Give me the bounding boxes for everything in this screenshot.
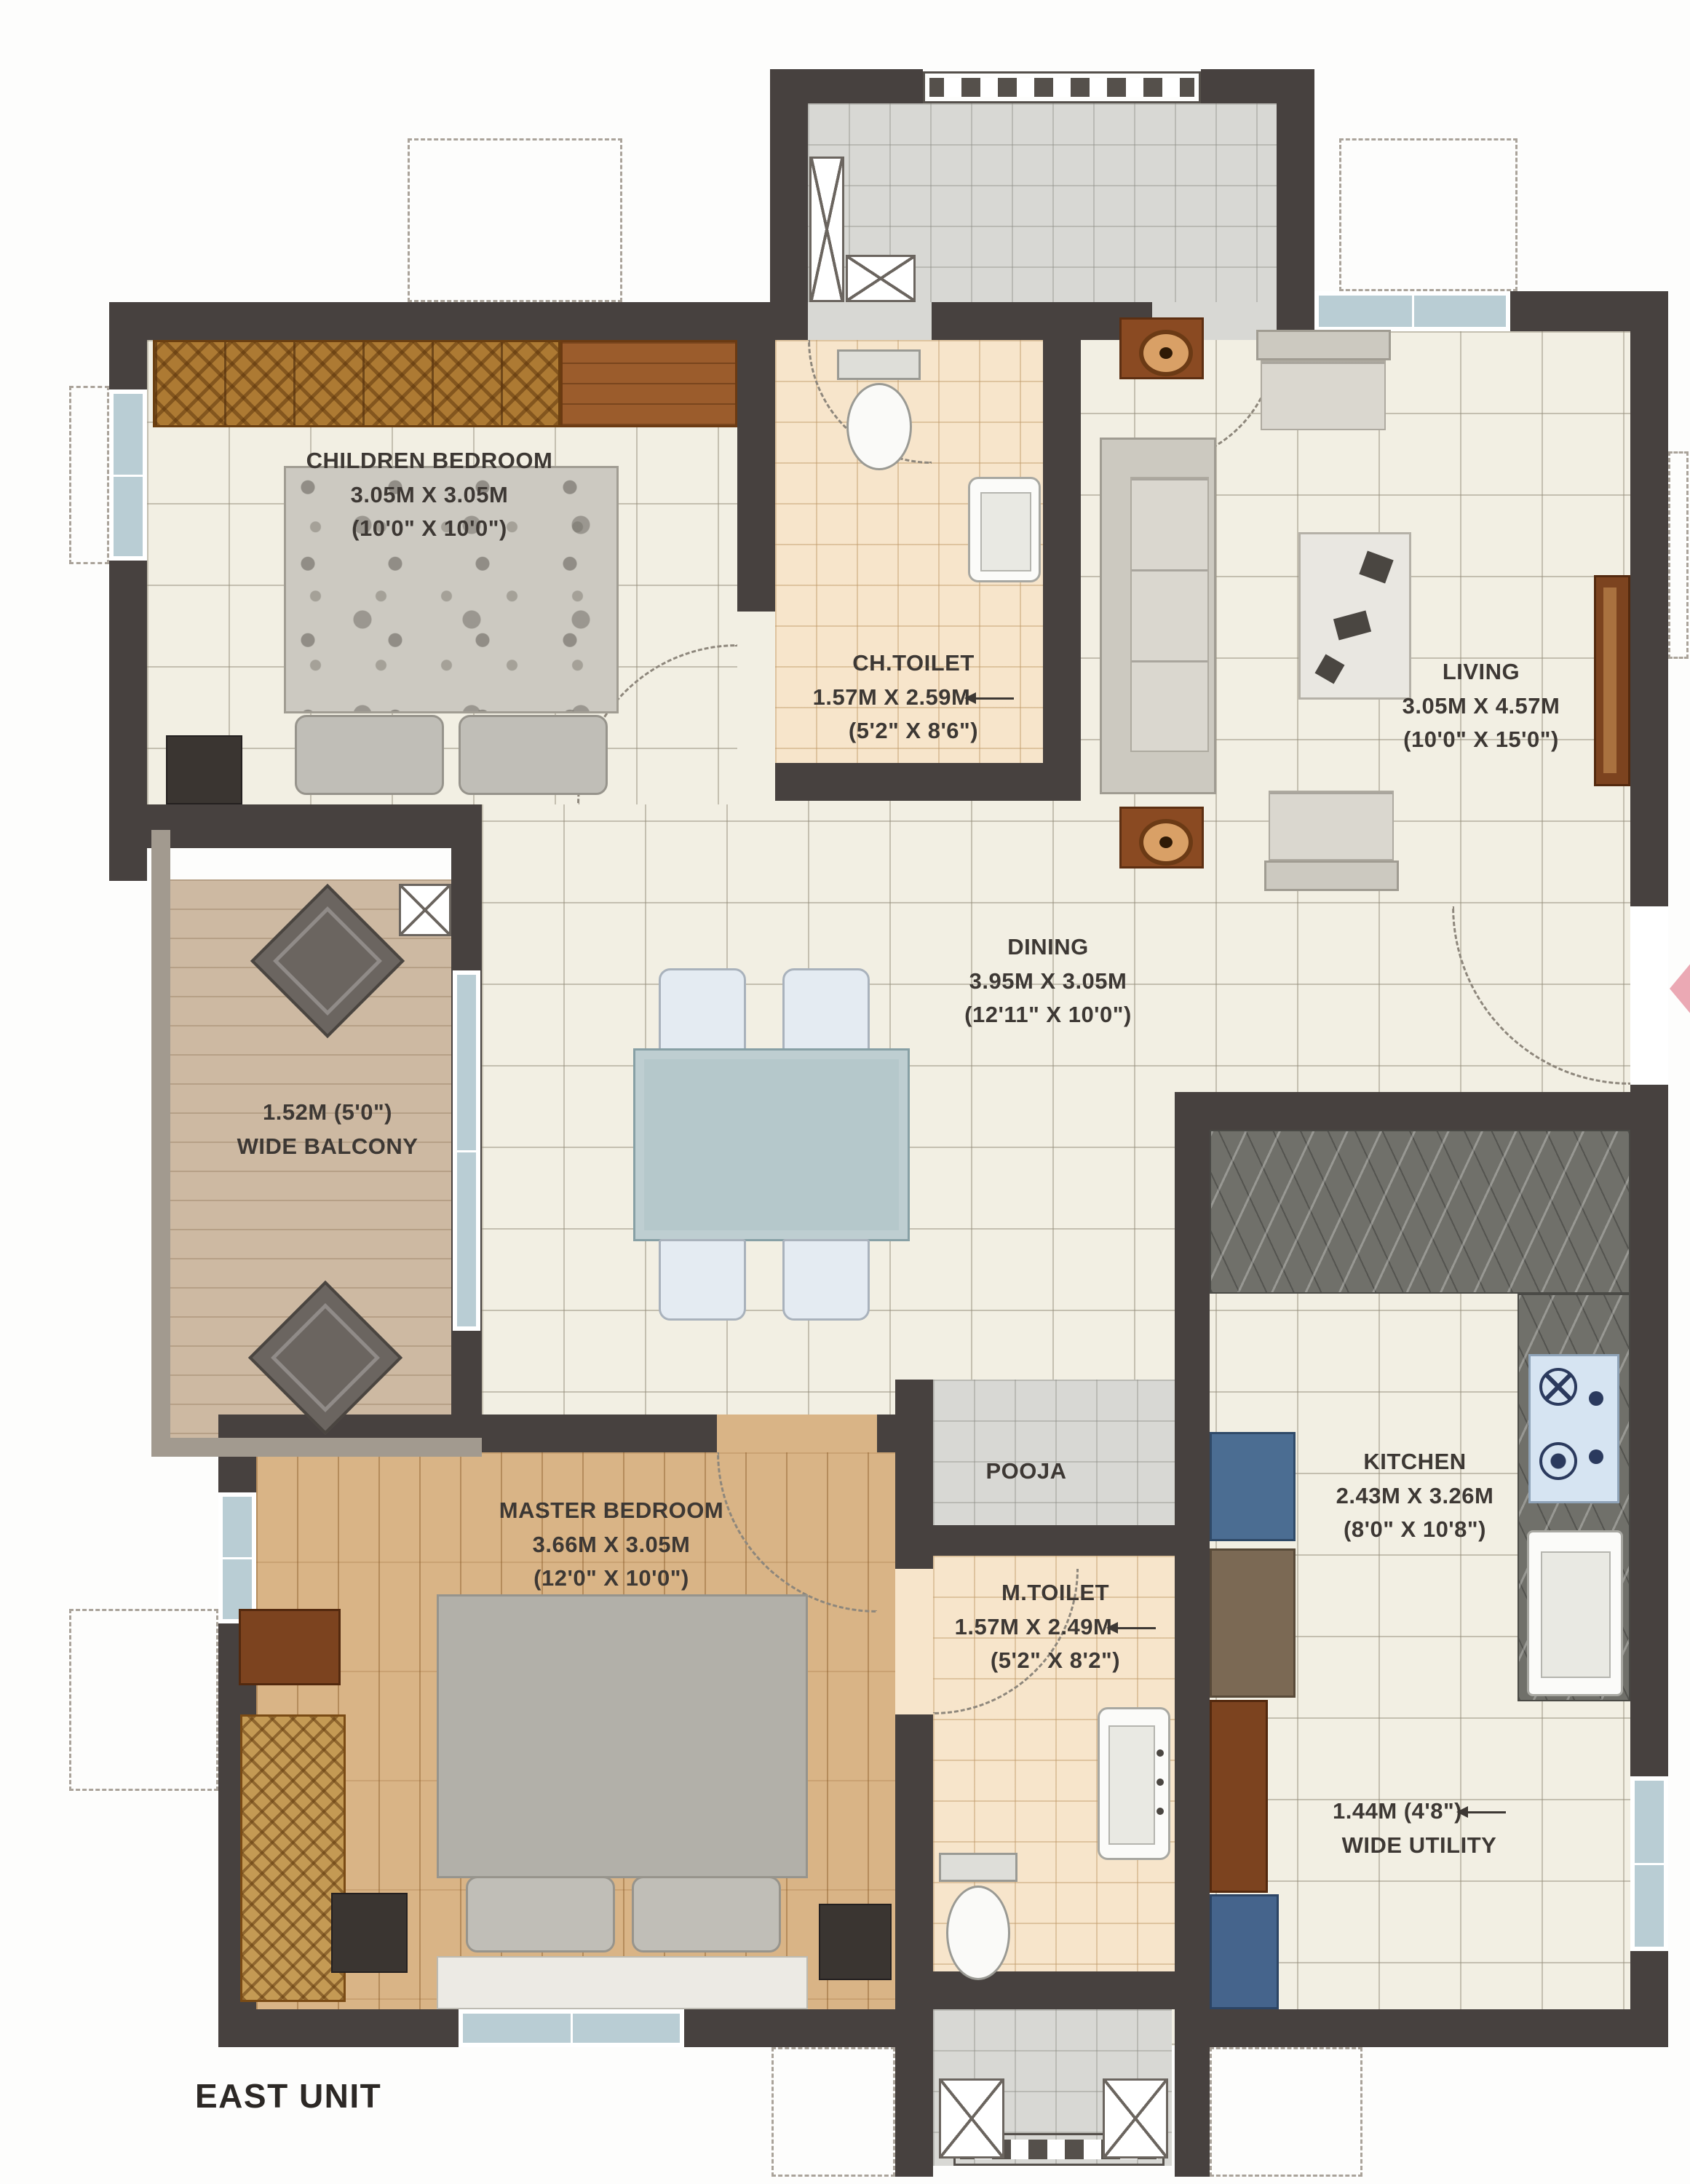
wall-entry-top-b bbox=[1201, 69, 1314, 103]
master-bedroom-bottom-window bbox=[459, 2009, 684, 2047]
utility-window bbox=[1630, 1776, 1668, 1951]
balcony-parapet-left bbox=[151, 830, 170, 1457]
master-bedroom-label: MASTER BEDROOM 3.66M X 3.05M (12'0" X 10… bbox=[404, 1494, 819, 1596]
children-wardrobe bbox=[153, 340, 560, 427]
children-toilet-label: CH.TOILET 1.57M X 2.59M (5'2" X 8'6") bbox=[786, 646, 1041, 748]
room-size-m: 3.95M X 3.05M bbox=[888, 965, 1208, 999]
room-size-ft: (10'0" X 10'0") bbox=[226, 512, 633, 546]
children-toilet-washbasin bbox=[968, 477, 1041, 582]
dimension-leader-icon bbox=[1115, 1627, 1156, 1629]
wall-pooja-bottom bbox=[933, 1525, 1175, 1556]
shaft-icon bbox=[1103, 2078, 1168, 2159]
room-size-ft: (12'11" X 10'0") bbox=[888, 998, 1208, 1032]
wall-mtoilet-left bbox=[895, 1714, 933, 2177]
children-bedroom-label: CHILDREN BEDROOM 3.05M X 3.05M (10'0" X … bbox=[226, 444, 633, 546]
room-size-m: 1.57M X 2.59M bbox=[786, 681, 1041, 715]
lounge-cushion bbox=[273, 906, 382, 1016]
tap-dot bbox=[1157, 1749, 1164, 1757]
master-bed-foot-runner bbox=[437, 1956, 808, 2009]
loveseat-back bbox=[1256, 330, 1391, 360]
room-size-ft: (8'0" X 10'8") bbox=[1287, 1513, 1543, 1547]
table-decor bbox=[1333, 611, 1371, 641]
children-cabinet bbox=[560, 340, 737, 427]
balcony-text: WIDE BALCONY bbox=[207, 1130, 448, 1164]
dining-chair bbox=[782, 1239, 870, 1321]
room-size-m: 3.66M X 3.05M bbox=[404, 1528, 819, 1562]
wall-toilet-bottom bbox=[737, 763, 1081, 801]
master-bedroom-door-opening bbox=[717, 1415, 877, 1452]
unit-title: EAST UNIT bbox=[195, 2076, 381, 2116]
kitchen-sink bbox=[1527, 1530, 1623, 1696]
room-size-m: 3.05M X 4.57M bbox=[1357, 689, 1605, 724]
room-name: CHILDREN BEDROOM bbox=[226, 444, 633, 478]
loveseat-seat bbox=[1269, 791, 1394, 860]
wall-entry-left bbox=[770, 69, 808, 302]
projection-box-top-left bbox=[408, 138, 622, 302]
kitchen-sink-basin bbox=[1541, 1551, 1611, 1678]
master-bedroom-side-window bbox=[218, 1492, 256, 1623]
washbasin-bowl bbox=[1108, 1725, 1155, 1845]
room-name: LIVING bbox=[1357, 655, 1605, 689]
projection-box-left-upper bbox=[69, 386, 109, 564]
master-nightstand bbox=[331, 1893, 408, 1973]
wall-entry-top-a bbox=[770, 69, 923, 103]
washing-machine-icon bbox=[1210, 1894, 1279, 2009]
table-decor bbox=[1359, 551, 1393, 584]
room-name: DINING bbox=[888, 930, 1208, 965]
lounge-cushion bbox=[271, 1303, 380, 1412]
room-name: CH.TOILET bbox=[786, 646, 1041, 681]
children-bed-pillow bbox=[295, 715, 444, 795]
dining-chair bbox=[659, 1239, 746, 1321]
top-entry-grill bbox=[923, 71, 1201, 103]
dimension-leader-icon bbox=[973, 697, 1014, 700]
wall-right-upper bbox=[1630, 291, 1668, 906]
kitchen-label: KITCHEN 2.43M X 3.26M (8'0" X 10'8") bbox=[1287, 1445, 1543, 1547]
wall-children-toilet-divider bbox=[737, 340, 775, 612]
kitchen-cabinet-blue bbox=[1210, 1432, 1296, 1541]
master-toilet-wc-icon bbox=[946, 1886, 1010, 1980]
balcony-sliding-window bbox=[453, 970, 480, 1331]
master-dresser bbox=[239, 1609, 341, 1685]
balcony-parapet-bottom bbox=[151, 1438, 482, 1457]
children-bedroom-window bbox=[109, 389, 147, 561]
stove-burner bbox=[1589, 1391, 1603, 1406]
shaft-icon bbox=[846, 255, 916, 302]
wall-kitchen-left bbox=[1175, 1092, 1210, 2177]
loveseat-back bbox=[1264, 860, 1399, 891]
room-size-m: 1.57M X 2.49M bbox=[934, 1610, 1177, 1645]
room-size-m: 3.05M X 3.05M bbox=[226, 478, 633, 513]
dining-chair bbox=[659, 968, 746, 1054]
projection-box-left-lower bbox=[69, 1609, 218, 1791]
children-toilet-wc-icon bbox=[846, 383, 912, 470]
wall-kitchen-top bbox=[1175, 1092, 1668, 1130]
floor-plan: CHILDREN BEDROOM 3.05M X 3.05M (10'0" X … bbox=[0, 0, 1690, 2184]
utility-label: 1.44M (4'8") WIDE UTILITY bbox=[1288, 1795, 1550, 1862]
children-bed-pillow bbox=[459, 715, 608, 795]
children-toilet-door-opening bbox=[808, 302, 932, 340]
wall-pooja-left bbox=[895, 1380, 933, 1569]
speaker-dot bbox=[1159, 347, 1173, 359]
children-nightstand bbox=[166, 735, 242, 804]
shaft-icon bbox=[939, 2078, 1004, 2159]
master-bed bbox=[437, 1594, 808, 1878]
children-bedroom-door-opening bbox=[737, 612, 775, 804]
table-decor bbox=[1315, 654, 1345, 684]
speaker-icon bbox=[1119, 807, 1204, 869]
master-toilet-cistern bbox=[939, 1853, 1017, 1882]
master-bed-pillow bbox=[466, 1876, 615, 1952]
master-wardrobe bbox=[240, 1714, 346, 2002]
shaft-icon bbox=[809, 157, 844, 302]
stove-burner bbox=[1539, 1442, 1577, 1480]
speaker-dot bbox=[1159, 836, 1173, 848]
children-toilet-cistern bbox=[837, 349, 921, 380]
room-name: KITCHEN bbox=[1287, 1445, 1543, 1479]
wall-entry-right bbox=[1277, 69, 1314, 331]
room-size-ft: (5'2" X 8'6") bbox=[786, 714, 1041, 748]
kitchen-cabinet bbox=[1210, 1548, 1296, 1698]
dining-label: DINING 3.95M X 3.05M (12'11" X 10'0") bbox=[888, 930, 1208, 1032]
room-size-ft: (5'2" X 8'2") bbox=[934, 1644, 1177, 1678]
room-size-ft: (12'0" X 10'0") bbox=[404, 1562, 819, 1596]
sofa-cushions bbox=[1130, 477, 1209, 752]
dimension-leader-icon bbox=[1465, 1811, 1506, 1813]
loveseat-seat bbox=[1261, 360, 1386, 430]
speaker-cone bbox=[1139, 819, 1193, 866]
projection-box-right bbox=[1668, 451, 1689, 659]
utility-tall-cabinet bbox=[1210, 1700, 1268, 1893]
shaft-icon bbox=[399, 884, 451, 936]
main-door-opening bbox=[1630, 906, 1668, 1085]
projection-box-top-right bbox=[1339, 138, 1518, 291]
living-label: LIVING 3.05M X 4.57M (10'0" X 15'0") bbox=[1357, 655, 1605, 757]
master-bed-pillow bbox=[632, 1876, 781, 1952]
master-nightstand bbox=[819, 1904, 892, 1980]
utility-width: 1.44M (4'8") bbox=[1288, 1795, 1550, 1829]
master-toilet-door-opening bbox=[895, 1569, 933, 1714]
tap-dot bbox=[1157, 1808, 1164, 1815]
wall-toilet-living-divider bbox=[1043, 340, 1081, 801]
master-toilet-washbasin bbox=[1098, 1707, 1170, 1860]
dining-table bbox=[633, 1048, 910, 1241]
washbasin-bowl bbox=[980, 492, 1031, 571]
room-name: POOJA bbox=[953, 1455, 1099, 1489]
balcony-width: 1.52M (5'0") bbox=[207, 1096, 448, 1130]
room-size-m: 2.43M X 3.26M bbox=[1287, 1479, 1543, 1514]
tap-dot bbox=[1157, 1779, 1164, 1786]
tv-unit-shelf bbox=[1603, 587, 1616, 773]
balcony-label: 1.52M (5'0") WIDE BALCONY bbox=[207, 1096, 448, 1163]
stove-burner bbox=[1589, 1449, 1603, 1464]
projection-box-bottom-right bbox=[1210, 2047, 1362, 2177]
speaker-cone bbox=[1139, 330, 1193, 376]
wall-master-top-b bbox=[877, 1415, 895, 1452]
living-window bbox=[1314, 291, 1510, 331]
utility-text: WIDE UTILITY bbox=[1288, 1829, 1550, 1863]
room-name: M.TOILET bbox=[934, 1576, 1177, 1610]
pooja-label: POOJA bbox=[953, 1455, 1099, 1489]
speaker-icon bbox=[1119, 317, 1204, 379]
pooja-floor bbox=[933, 1380, 1175, 1525]
room-name: MASTER BEDROOM bbox=[404, 1494, 819, 1528]
room-size-ft: (10'0" X 15'0") bbox=[1357, 723, 1605, 757]
dining-chair bbox=[782, 968, 870, 1054]
main-entry-arrow-icon bbox=[1670, 962, 1690, 1015]
master-toilet-label: M.TOILET 1.57M X 2.49M (5'2" X 8'2") bbox=[934, 1576, 1177, 1678]
kitchen-counter-top bbox=[1210, 1130, 1630, 1294]
wall-bottom-right bbox=[1210, 2009, 1668, 2047]
stove-burner bbox=[1539, 1368, 1577, 1406]
projection-box-bottom-left bbox=[771, 2047, 895, 2177]
